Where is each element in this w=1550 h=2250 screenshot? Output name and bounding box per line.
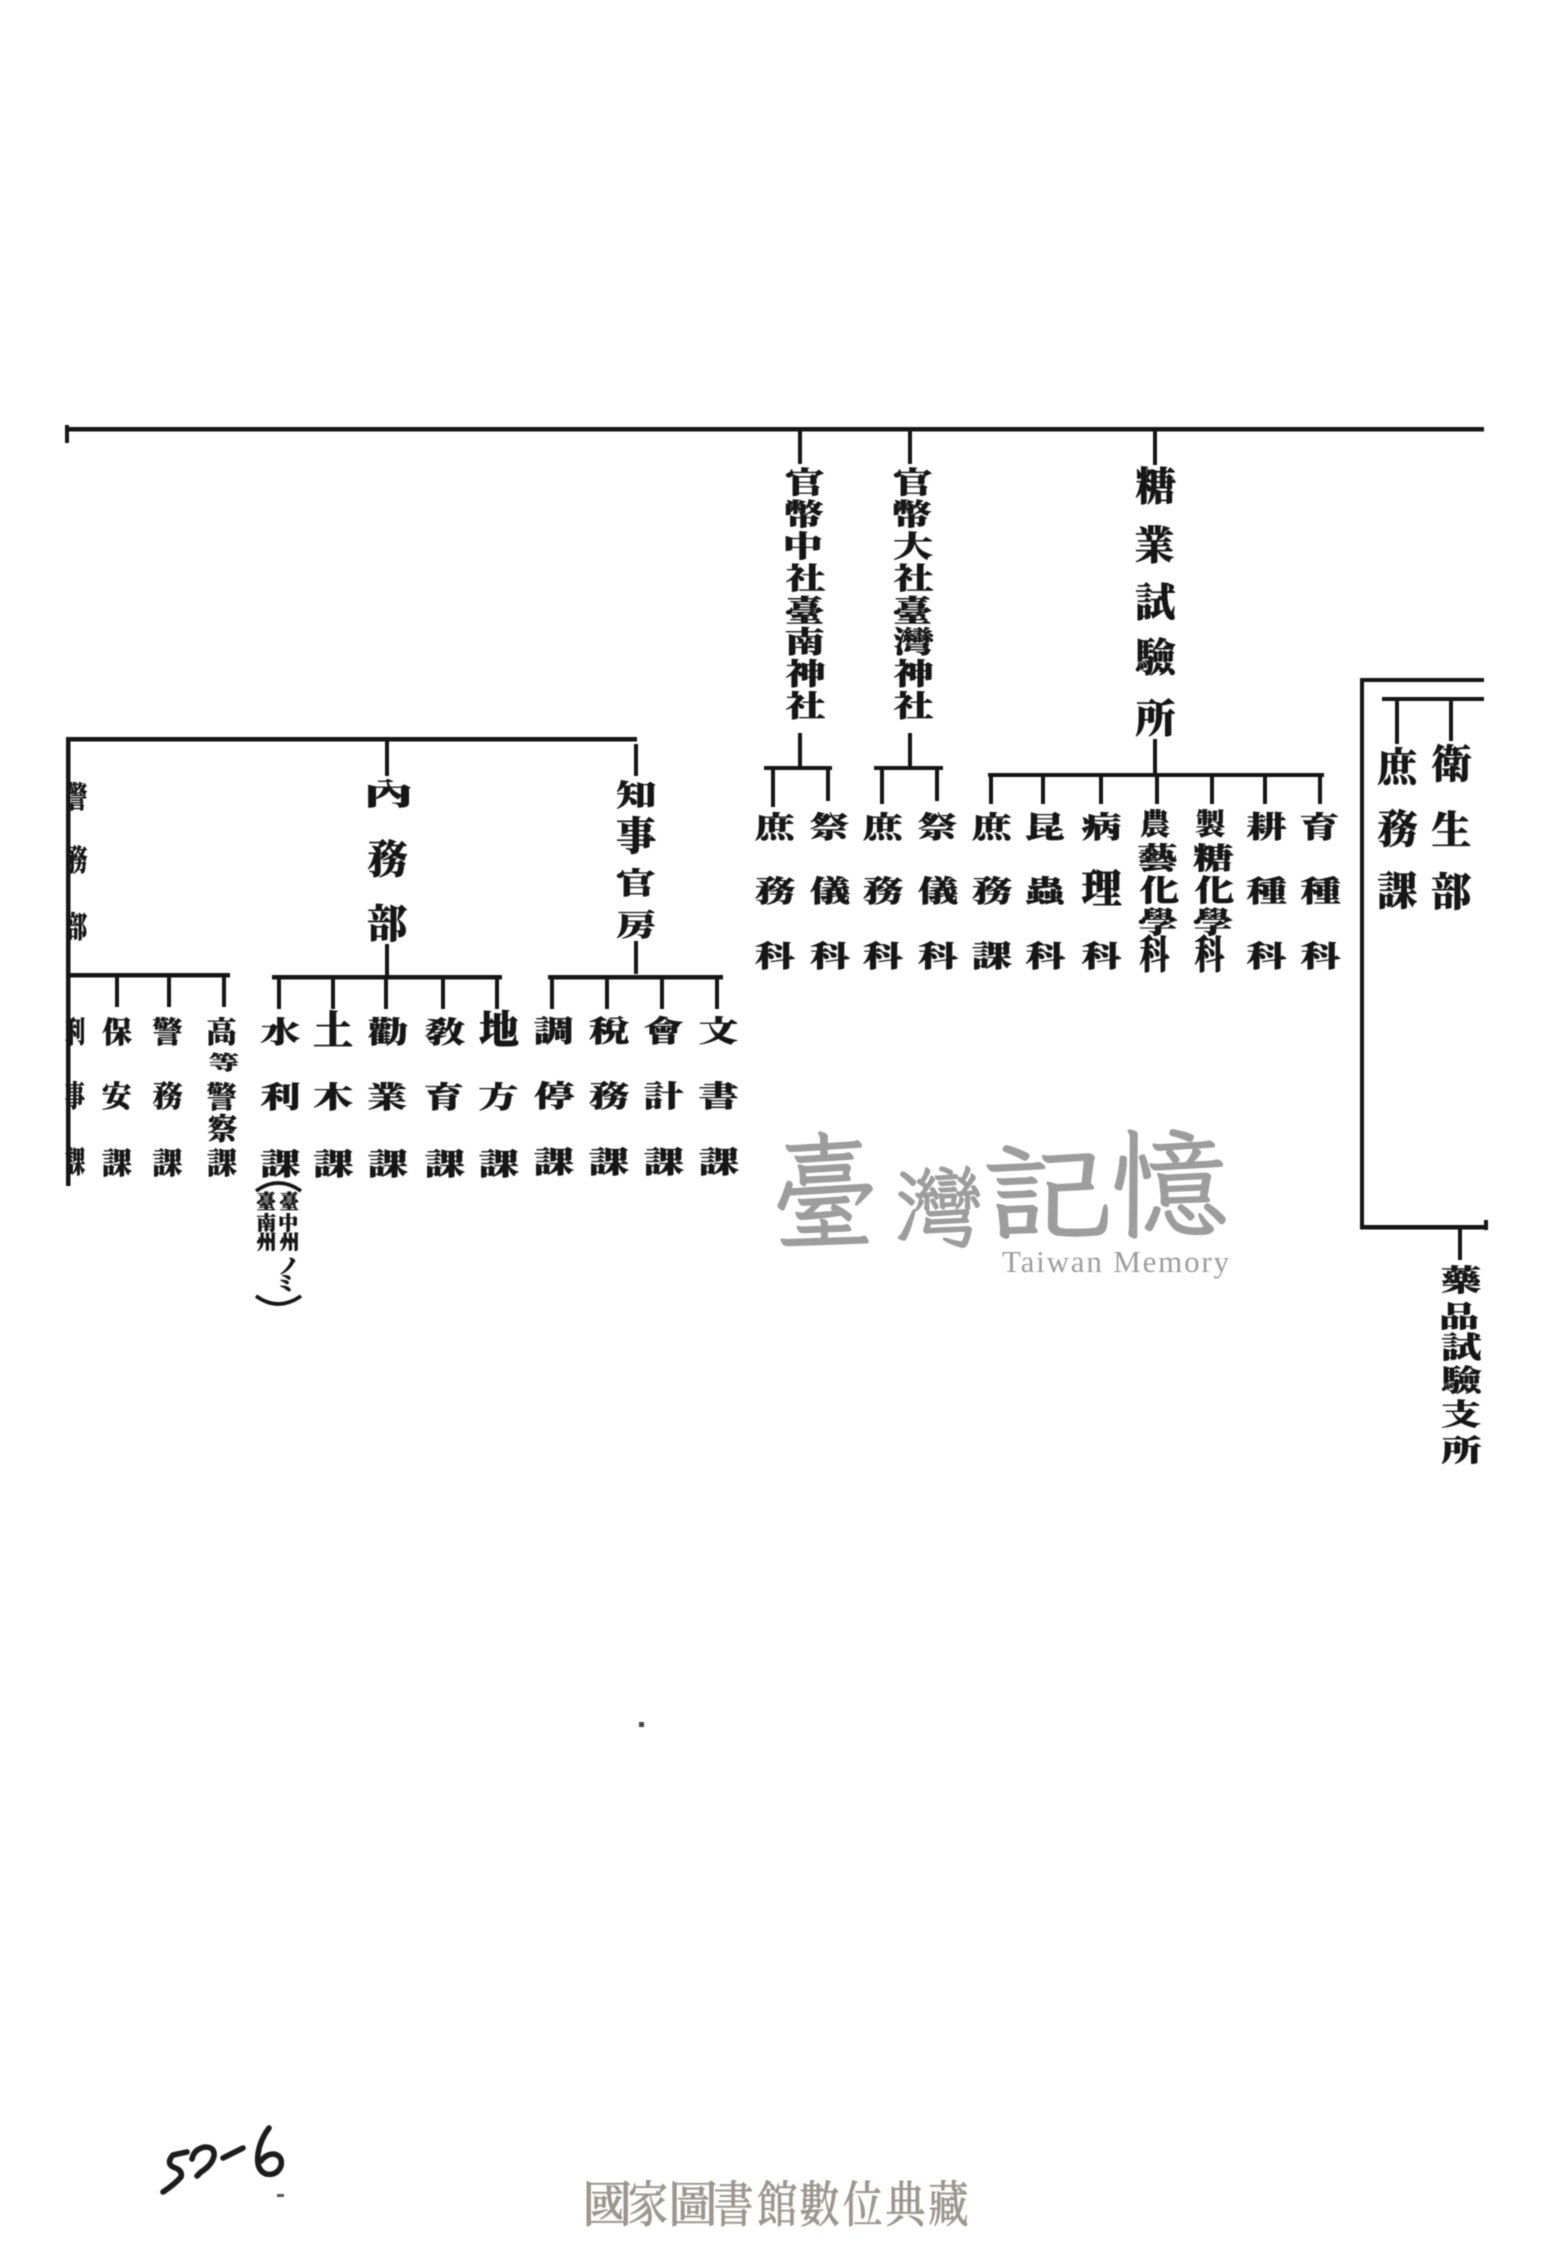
svg-text:Taiwan Memory: Taiwan Memory: [1002, 1244, 1230, 1279]
